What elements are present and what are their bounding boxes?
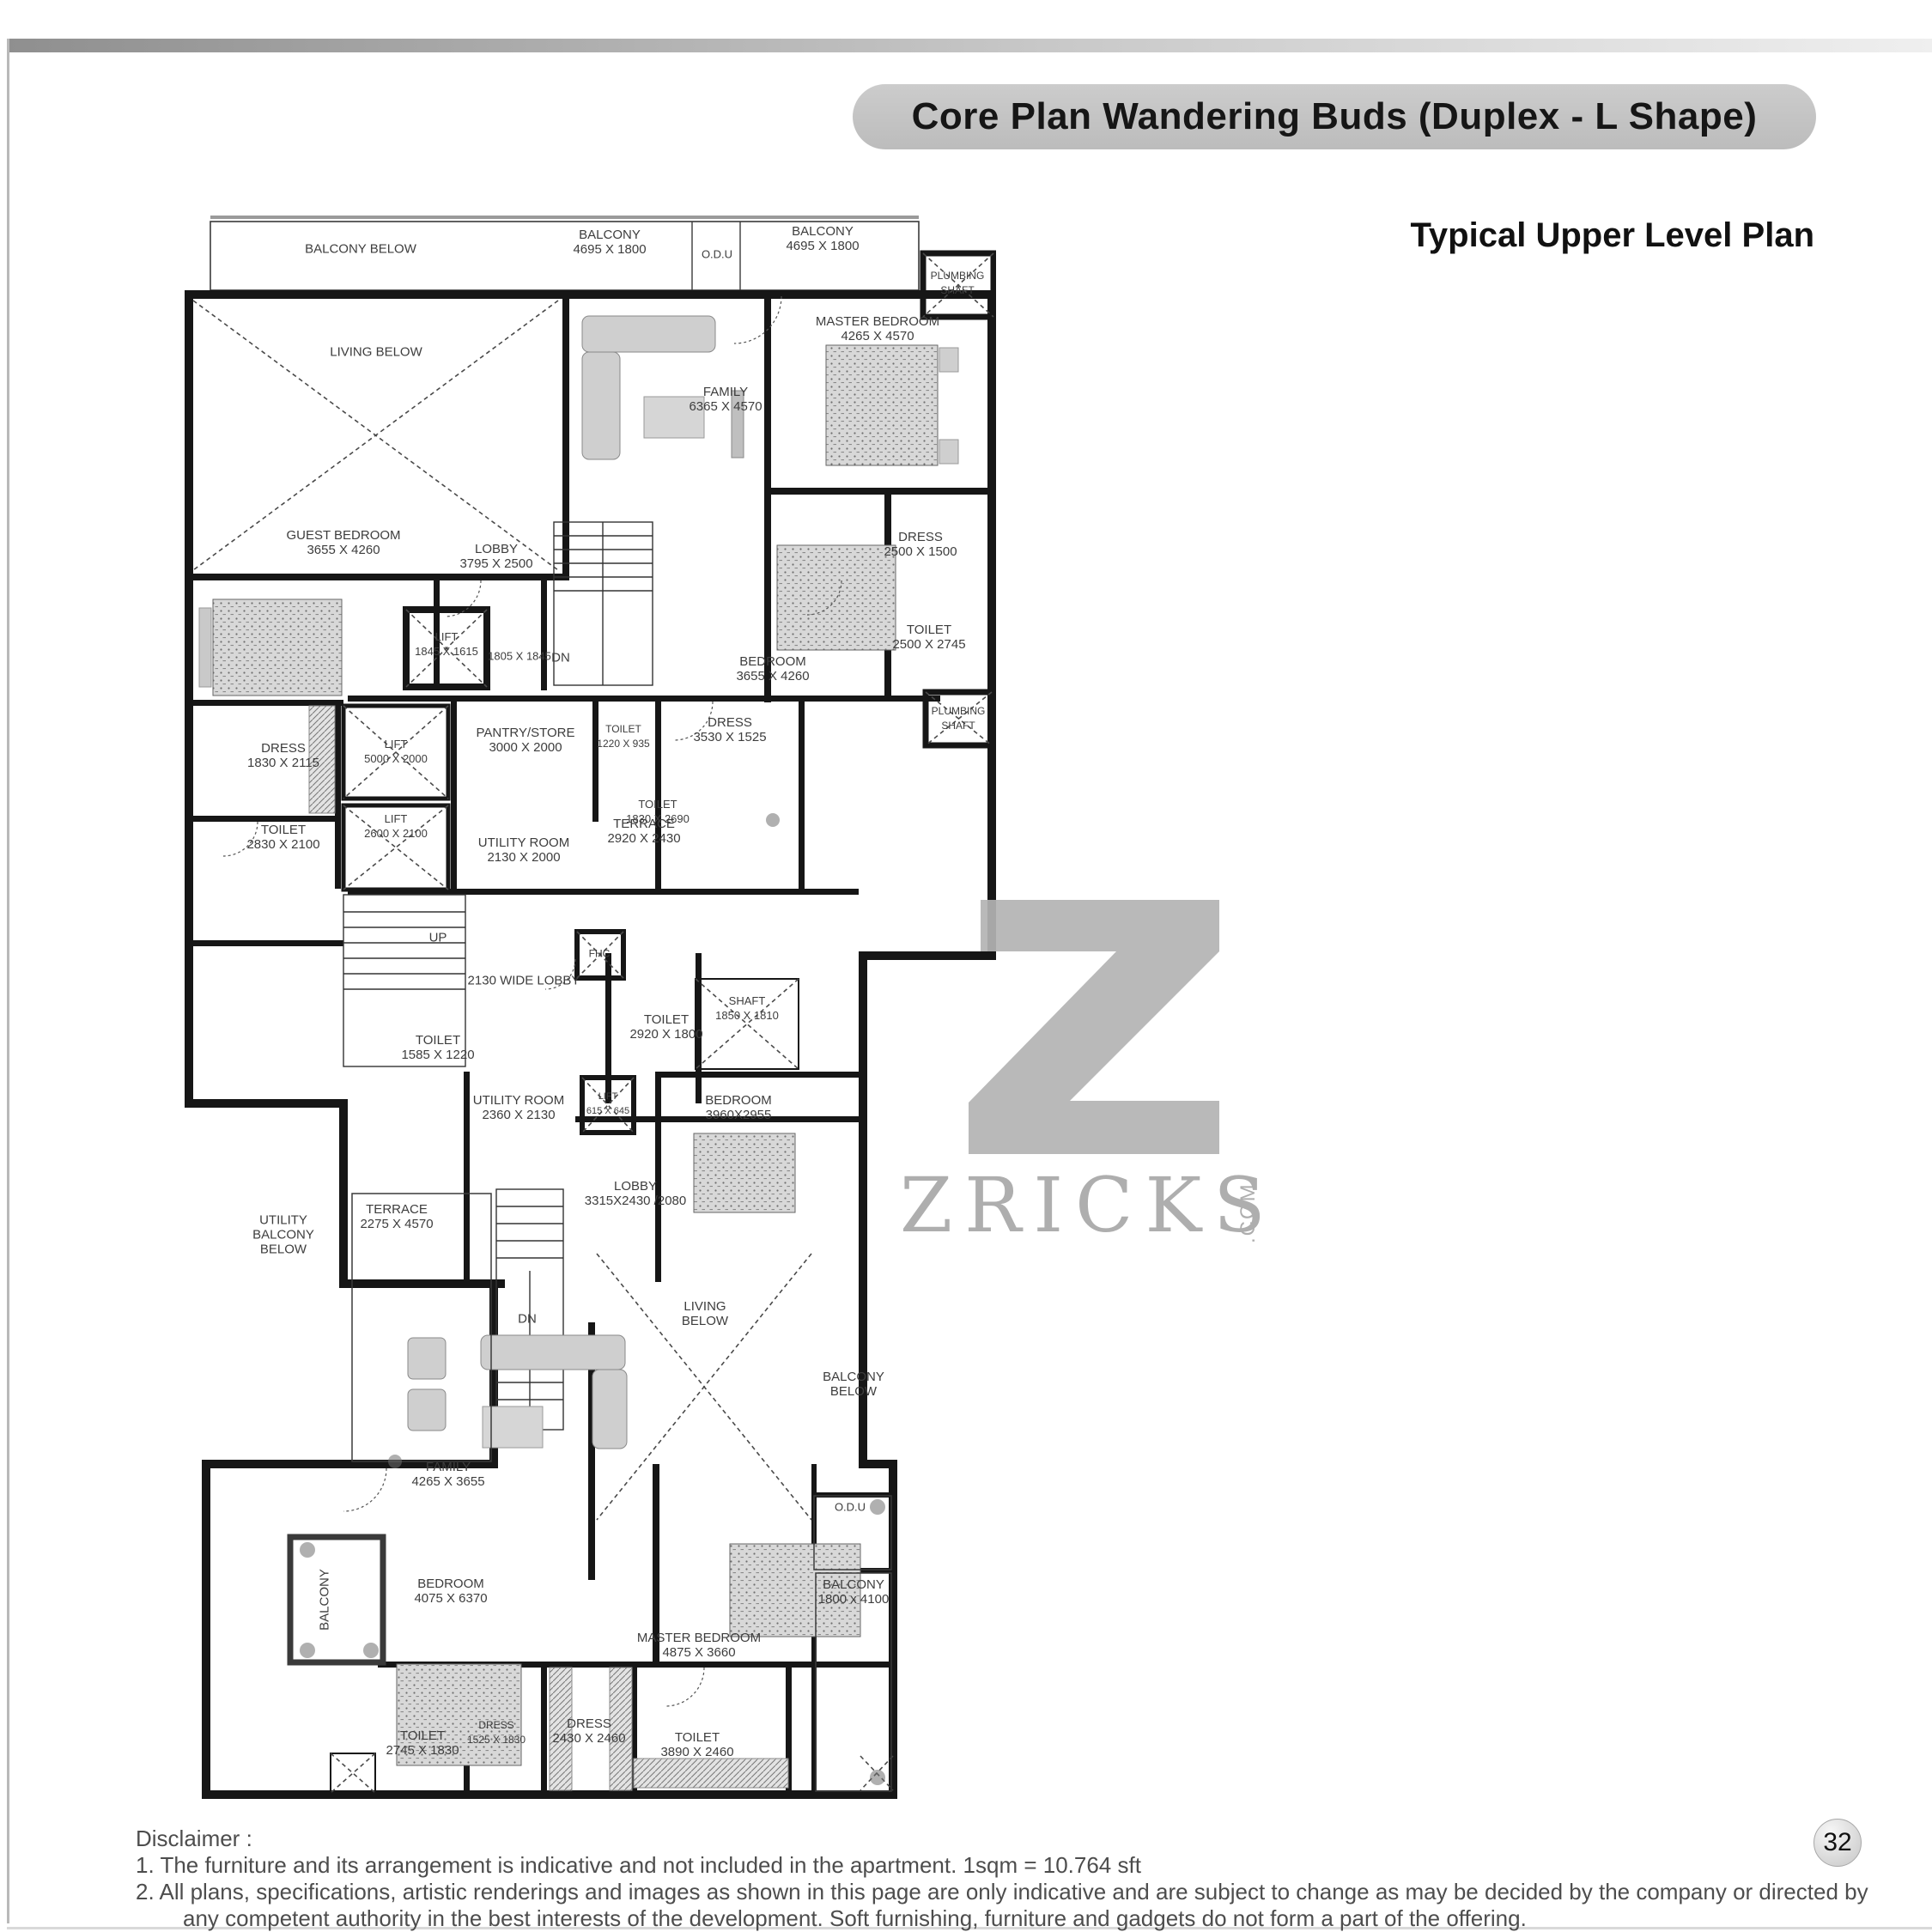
page-title: Core Plan Wandering Buds (Duplex - L Sha… [912,95,1758,138]
disclaimer-line: 2. All plans, specifications, artistic r… [136,1879,1868,1905]
floor-plan: BALCONY BELOWBALCONY4695 X 1800O.D.UBALC… [180,215,996,1803]
room-label: FAMILY6365 X 4570 [689,385,762,414]
room-label: DRESS2430 X 2460 [552,1716,625,1746]
disclaimer-line: 1. The furniture and its arrangement is … [136,1852,1868,1879]
room-label: GUEST BEDROOM3655 X 4260 [286,528,400,557]
left-rule-line [7,39,9,1923]
room-label: MASTER BEDROOM4875 X 3660 [637,1631,761,1660]
room-label: MASTER BEDROOM4265 X 4570 [816,314,939,343]
floor-plan-drawing [180,215,996,1803]
room-label: PLUMBINGSHAFT [932,704,986,733]
disclaimer: Disclaimer : 1. The furniture and its ar… [136,1826,1868,1932]
room-label: TOILET1220 X 935 [597,722,649,751]
disclaimer-line: any competent authority in the best inte… [136,1905,1868,1932]
room-label: BEDROOM3960X2955 [705,1093,772,1122]
room-label: LIFT615 X 645 [586,1090,629,1119]
room-label: LIVINGBELOW [682,1299,728,1328]
room-label: BEDROOM3655 X 4260 [736,654,809,683]
room-label: BALCONY4695 X 1800 [573,228,646,257]
room-label: BALCONY [318,1569,332,1631]
room-label: BALCONY4695 X 1800 [786,224,859,253]
room-label: TOILET3890 X 2460 [660,1730,733,1759]
room-label: PLUMBINGSHAFT [931,269,985,298]
room-label: BALCONY BELOW [305,242,416,257]
room-label: LOBBY3795 X 2500 [459,542,532,571]
page-number-badge: 32 [1814,1819,1862,1867]
room-label: SHAFT1850 X 1810 [715,993,779,1023]
room-label: LIVING BELOW [330,345,422,360]
room-label: O.D.U [702,247,732,262]
room-label: DRESS3530 X 1525 [693,715,766,744]
room-label: O.D.U [835,1500,866,1515]
room-label: TOILET2500 X 2745 [892,623,965,652]
room-label: DN [551,651,570,665]
room-label: BALCONY1800 x 4100 [818,1577,890,1607]
room-label: UP [429,931,447,945]
room-label: TOILET1585 X 1220 [401,1033,474,1062]
room-label: LIFT1845 X 1615 [415,629,478,659]
room-label: 1805 X 1845 [488,649,551,664]
room-label: LIFT2600 X 2100 [364,811,428,841]
room-label: TOILET2830 X 2100 [246,823,319,852]
zricks-watermark-com: .COM [1236,1166,1262,1243]
zricks-watermark-logo [969,900,1219,1154]
room-label: DRESS1830 X 2115 [247,741,319,770]
room-label: DRESS1525 X 1830 [467,1718,526,1747]
room-label: DRESS2500 X 1500 [884,530,957,559]
disclaimer-heading: Disclaimer : [136,1826,1868,1852]
room-label: UTILITY ROOM2130 X 2000 [478,835,569,865]
room-label: TERRACE2920 X 2430 [607,817,680,846]
plan-subtitle: Typical Upper Level Plan [1410,216,1814,255]
room-label: FHC [589,947,611,962]
room-label: PANTRY/STORE3000 X 2000 [476,726,574,755]
room-label: TOILET2745 X 1830 [386,1728,459,1758]
room-label: LOBBY3315X2430 /2080 [585,1179,686,1208]
room-label: UTILITYBALCONYBELOW [252,1213,314,1257]
zricks-watermark-text: ZRICKS [900,1161,1278,1249]
room-label: 2130 WIDE LOBBY [468,974,580,988]
room-label: TERRACE2275 X 4570 [360,1202,433,1231]
top-rule-bar [7,39,1932,52]
room-label: UTILITY ROOM2360 X 2130 [473,1093,564,1122]
page-number: 32 [1823,1828,1851,1857]
room-label: DN [518,1312,537,1327]
room-label: BALCONYBELOW [823,1370,884,1399]
room-label: LIFT5000 X 2000 [364,737,428,766]
room-label: BEDROOM4075 X 6370 [414,1577,487,1606]
title-banner: Core Plan Wandering Buds (Duplex - L Sha… [853,84,1816,149]
room-label: TOILET2920 X 1800 [629,1012,702,1042]
room-label: FAMILY4265 X 3655 [411,1460,484,1489]
